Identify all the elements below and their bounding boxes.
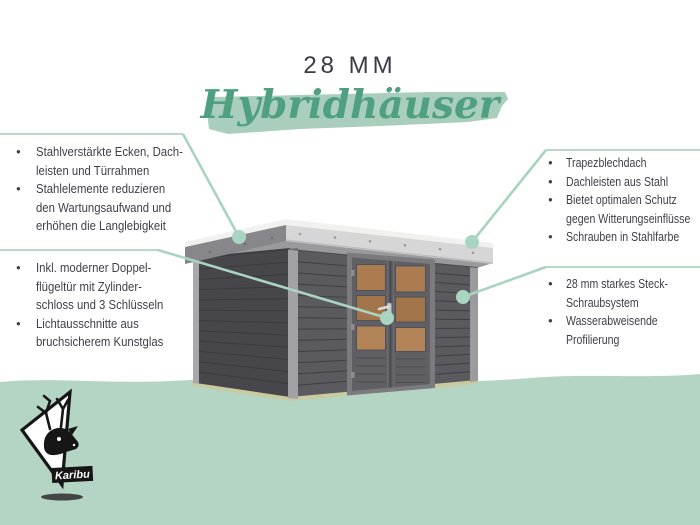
callout-item: ●WasserabweisendeProfilierung: [546, 312, 700, 349]
double-door: [347, 253, 435, 396]
callout-text: Inkl. moderner Doppel-flügeltür mit Zyli…: [36, 259, 211, 315]
corner-post-front-left: [288, 248, 298, 399]
callout-text: Dachleisten aus Stahl: [566, 173, 700, 192]
bullet-icon: ●: [546, 154, 566, 173]
bullet-icon: ●: [10, 315, 36, 352]
corner-post-right: [470, 266, 478, 382]
callout-text: Lichtausschnitte ausbruchsicherem Kunstg…: [36, 315, 211, 352]
door-windows-right: [396, 266, 426, 352]
bullet-icon: ●: [546, 191, 566, 228]
bullet-icon: ●: [546, 228, 566, 247]
callout-dot-door-handle: [380, 311, 394, 325]
callout-right-top: ●Trapezblechdach●Dachleisten aus Stahl●B…: [546, 154, 700, 247]
infographic-page: Karibu 28 MM Hybridhäuser ●Stahlverstärk…: [0, 0, 700, 525]
callout-dot-roof-right: [465, 235, 479, 249]
callout-text: Trapezblechdach: [566, 154, 700, 173]
callout-item: ●Lichtausschnitte ausbruchsicherem Kunst…: [10, 315, 240, 352]
callout-left-bottom: ●Inkl. moderner Doppel-flügeltür mit Zyl…: [10, 259, 240, 352]
bullet-icon: ●: [10, 180, 36, 236]
callout-item: ●28 mm starkes Steck-Schraubsystem: [546, 275, 700, 312]
callout-text: Schrauben in Stahlfarbe: [566, 228, 700, 247]
callout-text: 28 mm starkes Steck-Schraubsystem: [566, 275, 700, 312]
callout-line-right-top: [472, 150, 546, 242]
callout-item: ●Bietet optimalen Schutzgegen Witterungs…: [546, 191, 700, 228]
callout-item: ●Stahlelemente reduzierenden Wartungsauf…: [10, 180, 240, 236]
callout-item: ●Stahlverstärkte Ecken, Dach-leisten und…: [10, 143, 240, 180]
callout-item: ●Inkl. moderner Doppel-flügeltür mit Zyl…: [10, 259, 240, 315]
bullet-icon: ●: [10, 143, 36, 180]
callout-item: ●Schrauben in Stahlfarbe: [546, 228, 700, 247]
ground-band: [0, 374, 700, 525]
callout-item: ●Trapezblechdach: [546, 154, 700, 173]
callout-text: WasserabweisendeProfilierung: [566, 312, 700, 349]
callout-text: Bietet optimalen Schutzgegen Witterungse…: [566, 191, 700, 228]
callout-text: Stahlelemente reduzierenden Wartungsaufw…: [36, 180, 211, 236]
page-title: Hybridhäuser: [0, 84, 700, 127]
callout-text: Stahlverstärkte Ecken, Dach-leisten und …: [36, 143, 211, 180]
kicker-28mm: 28 MM: [0, 52, 700, 80]
callout-right-bottom: ●28 mm starkes Steck-Schraubsystem●Wasse…: [546, 275, 700, 349]
logo-brand-text: Karibu: [55, 469, 91, 483]
logo-shadow: [41, 494, 83, 501]
bullet-icon: ●: [546, 275, 566, 312]
bullet-icon: ●: [546, 312, 566, 349]
callout-left-top: ●Stahlverstärkte Ecken, Dach-leisten und…: [10, 143, 240, 236]
bullet-icon: ●: [546, 173, 566, 192]
callout-dot-wall-right: [456, 290, 470, 304]
bullet-icon: ●: [10, 259, 36, 315]
callout-item: ●Dachleisten aus Stahl: [546, 173, 700, 192]
